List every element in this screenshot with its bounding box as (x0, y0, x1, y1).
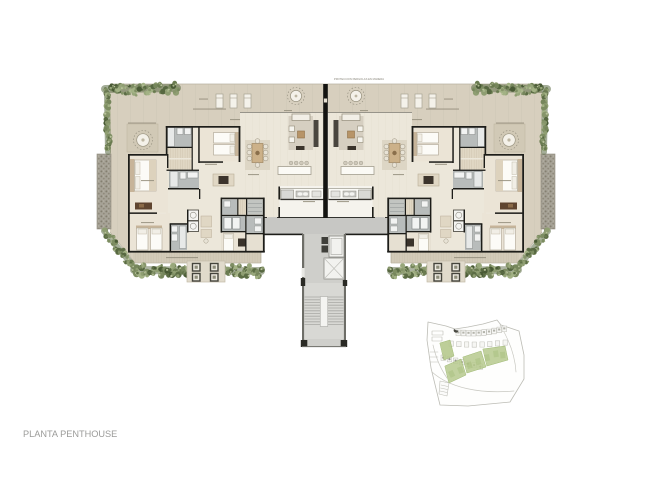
svg-text:PROTECCION PERGOLAS EN MADERA: PROTECCION PERGOLAS EN MADERA (334, 77, 384, 81)
svg-text:PLANTA PENTHOUSE: PLANTA PENTHOUSE (23, 429, 117, 439)
